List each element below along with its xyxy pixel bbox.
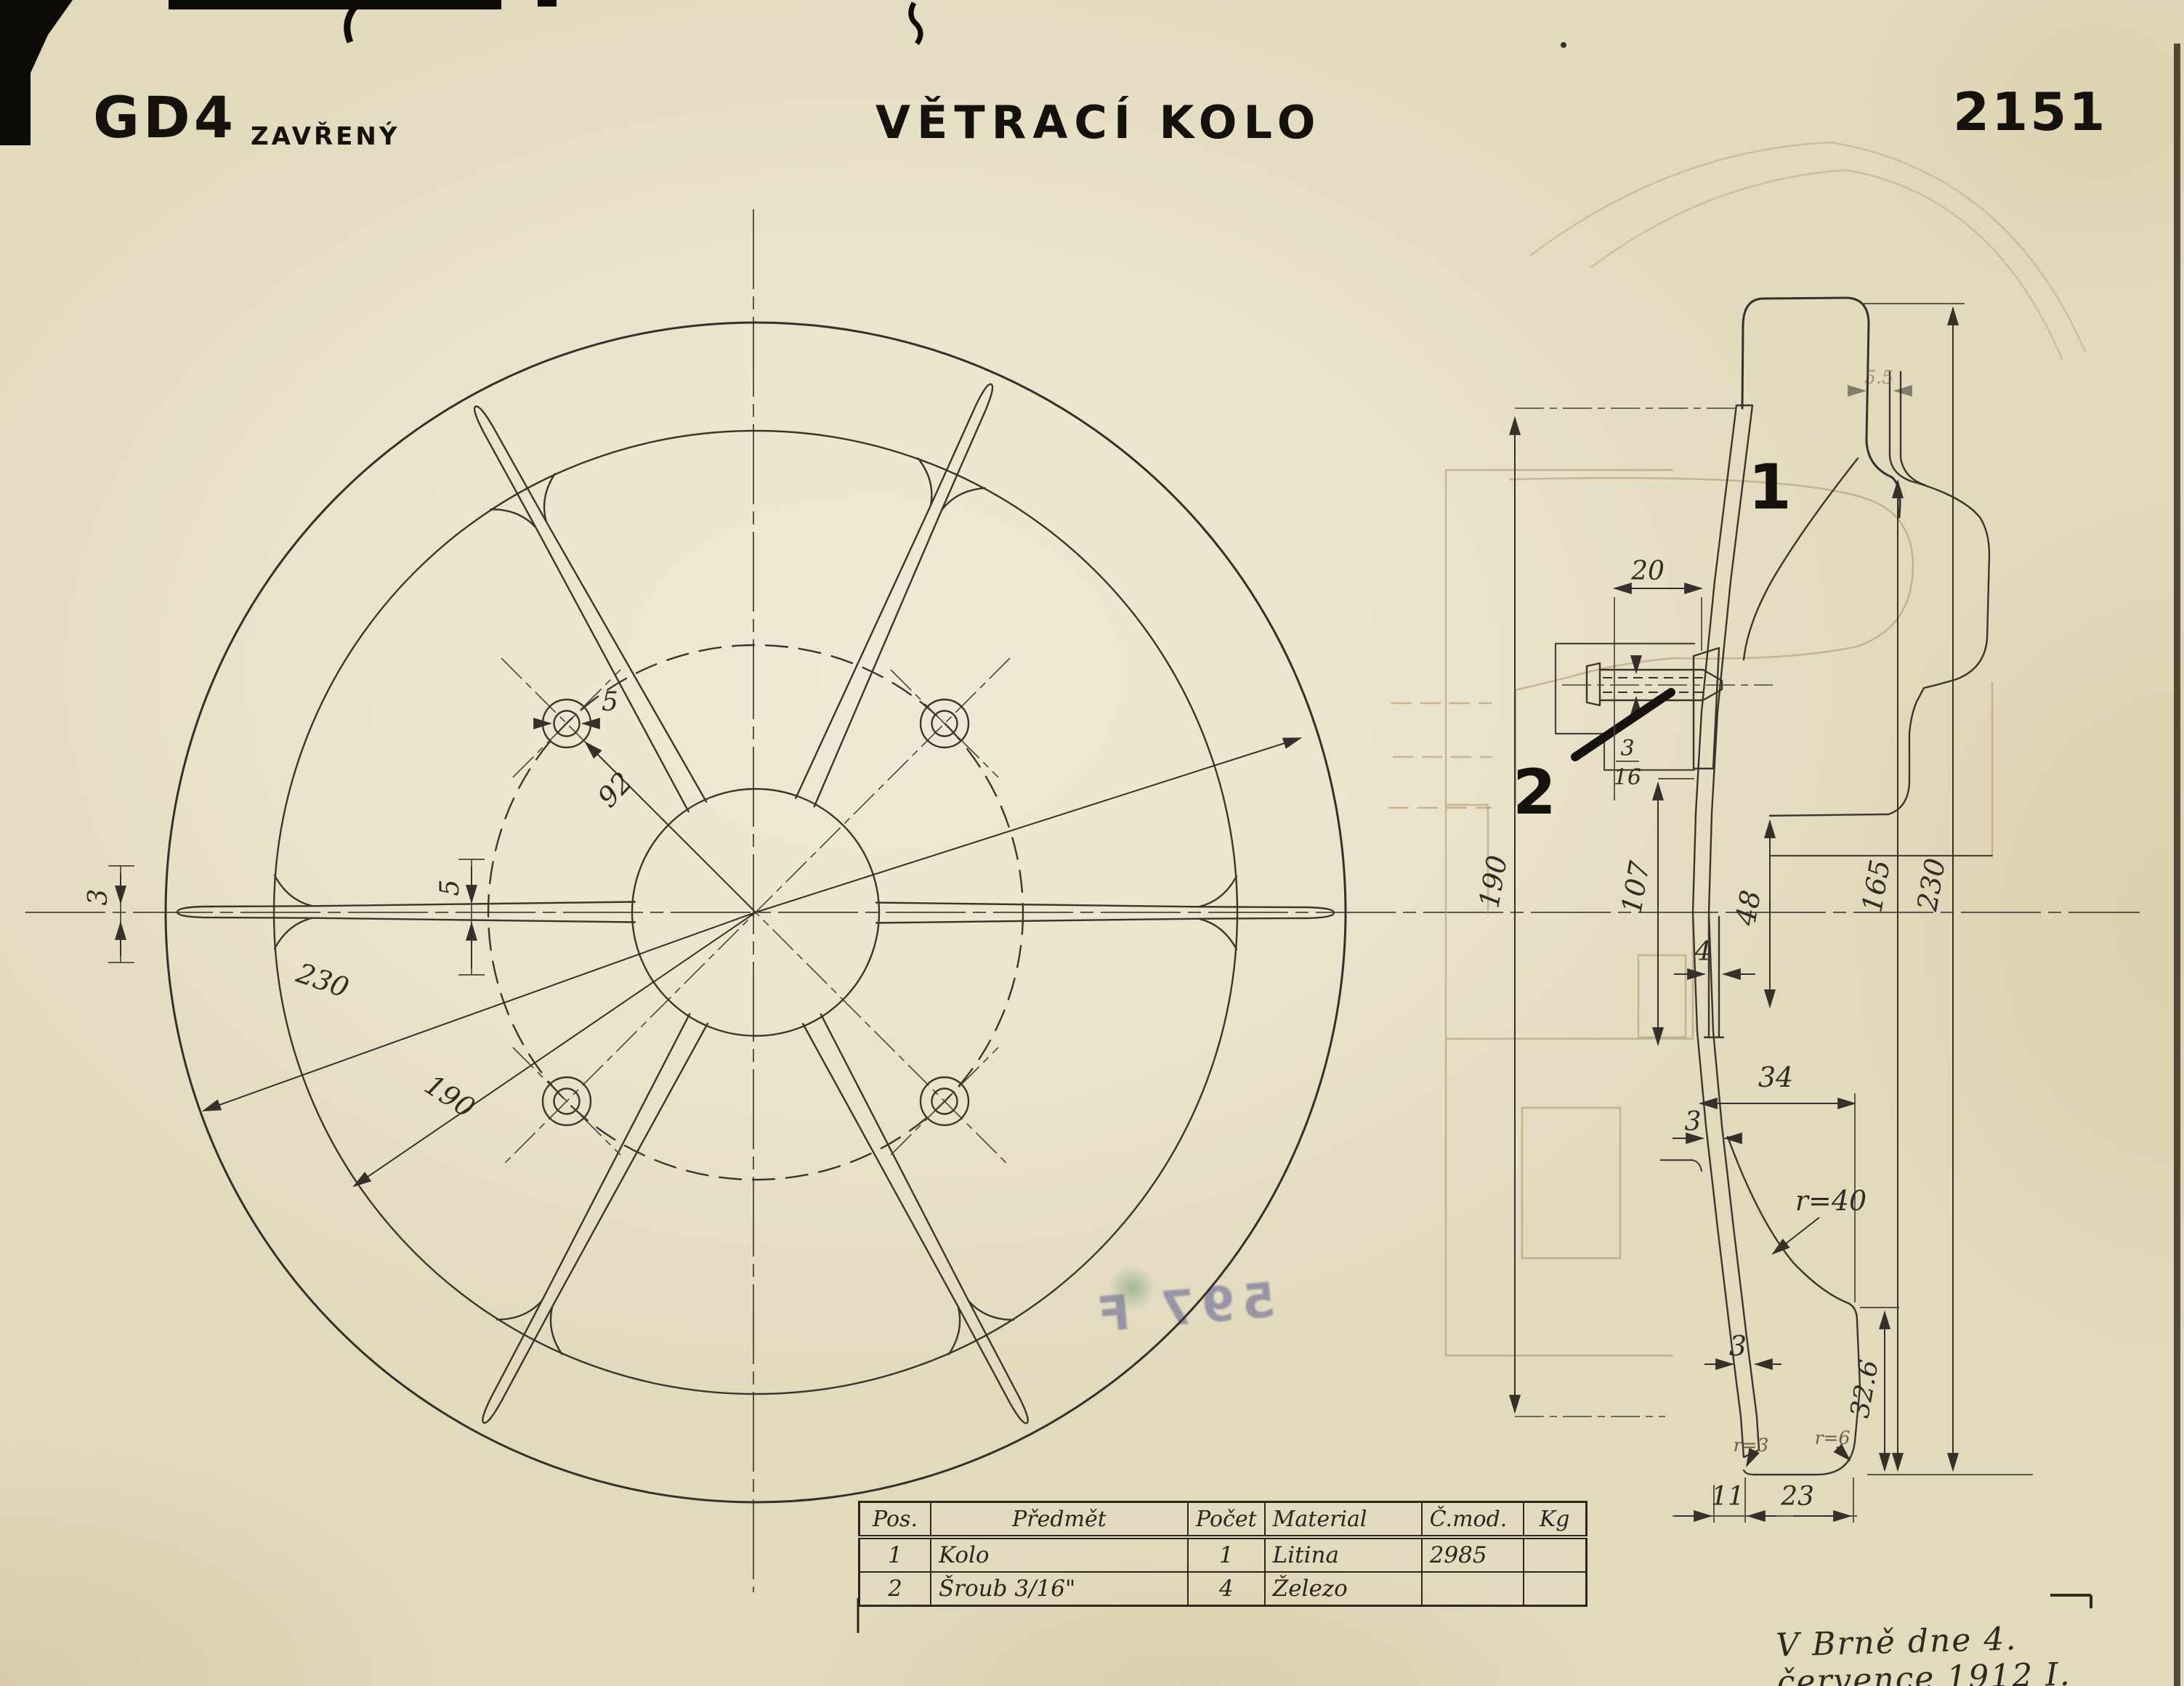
svg-text:5.5: 5.5 [1864, 367, 1893, 388]
dim-r3: r=3 [1734, 1435, 1769, 1466]
front-view: 230 190 92 5 3 5 [25, 209, 2140, 1592]
svg-text:r=3: r=3 [1734, 1435, 1769, 1456]
col-pos: Pos. [860, 1502, 931, 1538]
svg-text:5: 5 [435, 880, 465, 896]
cell: 2985 [1422, 1537, 1524, 1572]
svg-text:3: 3 [1620, 736, 1634, 761]
cell [1422, 1572, 1524, 1606]
dim-d107: 107 [1615, 779, 1694, 1045]
dim-r40: r=40 [1773, 1185, 1866, 1254]
svg-text:165: 165 [1856, 857, 1896, 915]
blade-elevation-line [1661, 1160, 1702, 1171]
svg-text:20: 20 [1630, 556, 1665, 586]
hub-bore-walls [1704, 917, 1723, 1037]
blade-lower-left [451, 1002, 731, 1440]
dim-55: 5.5 [1854, 367, 1906, 391]
date-note: V Brně dne 4. července 1912 I. [1776, 1616, 2184, 1686]
cell: 1 [860, 1537, 931, 1572]
dim-line-190 [354, 912, 756, 1186]
dim-text-230: 230 [292, 957, 353, 1005]
dim-blade-tip-3: 3 [84, 866, 134, 962]
drawing-canvas: 230 190 92 5 3 5 [0, 0, 2184, 1686]
cell [1524, 1537, 1587, 1572]
dim-blade-5: 5 [435, 859, 485, 975]
ink-squiggle [911, 3, 921, 44]
dim-d48: 48 [1729, 821, 1770, 1007]
scan-artifacts [0, 0, 2180, 1686]
svg-text:3: 3 [1729, 1330, 1747, 1362]
dim-34: 34 [1700, 1061, 1855, 1302]
svg-text:r=40: r=40 [1795, 1185, 1866, 1217]
pencil-arc [1591, 170, 2062, 359]
col-predmet: Předmět [931, 1502, 1188, 1538]
svg-text:107: 107 [1615, 858, 1656, 916]
ink-mark [347, 4, 357, 42]
dim-thread: 3 16 [1614, 736, 1641, 790]
svg-text:190: 190 [1473, 853, 1513, 910]
svg-text:230: 230 [1911, 856, 1952, 914]
radius-arrow [756, 738, 1301, 912]
cell: 1 [1188, 1537, 1265, 1572]
dim-text-190: 190 [419, 1069, 481, 1124]
blade-upper-left [443, 389, 729, 824]
svg-text:16: 16 [1614, 765, 1641, 790]
svg-text:3: 3 [84, 889, 113, 906]
svg-text:r=6: r=6 [1815, 1427, 1851, 1448]
svg-text:34: 34 [1758, 1061, 1793, 1093]
svg-text:4: 4 [1694, 937, 1712, 967]
table-row: 1 Kolo 1 Litina 2985 [860, 1537, 1587, 1572]
blade-upper-right [772, 369, 1025, 817]
dim-326: 32.6 [1845, 1308, 1899, 1470]
dim-11-23: 11 23 [1673, 1478, 1857, 1523]
dim-line-230 [203, 912, 756, 1111]
cell: Šroub 3/16" [931, 1572, 1188, 1606]
cell: Kolo [931, 1537, 1188, 1572]
dim-text-92: 92 [591, 766, 639, 813]
section-view: 1 2 3 16 20 190 [1389, 142, 2085, 1523]
cell [1524, 1572, 1587, 1606]
part-label-1: 1 [1748, 451, 1792, 524]
right-edge-shadow [2174, 44, 2180, 1686]
col-pocet: Počet [1188, 1502, 1265, 1538]
top-strip [169, 0, 501, 9]
cell: 2 [860, 1572, 931, 1606]
dim-line-92 [586, 742, 756, 912]
dim-d165: 165 [1856, 481, 1898, 1470]
inlet-neck [1890, 372, 1925, 485]
svg-text:23: 23 [1780, 1482, 1814, 1512]
dim-3-lower: 3 [1704, 1330, 1781, 1364]
cell: 4 [1188, 1572, 1265, 1606]
disc-section-hatched [1693, 405, 1759, 1457]
cell: Železo [1265, 1572, 1422, 1606]
dim-text-hole-5: 5 [602, 687, 618, 717]
svg-text:48: 48 [1729, 888, 1767, 928]
col-cmod: Č.mod. [1422, 1502, 1524, 1538]
part-label-2: 2 [1513, 756, 1556, 829]
cell: Litina [1265, 1537, 1422, 1572]
col-kg: Kg [1524, 1502, 1587, 1538]
corner-mark [2050, 1595, 2091, 1608]
pencil-casing [1389, 142, 2085, 1355]
svg-text:11: 11 [1711, 1482, 1744, 1512]
blueprint-sheet: GD4 ZAVŘENÝ VĚTRACÍ KOLO 2151 597 F [0, 0, 2184, 1686]
svg-text:3: 3 [1685, 1107, 1702, 1137]
fly-speck [1561, 42, 1566, 48]
col-material: Material [1265, 1502, 1422, 1538]
table-header-row: Pos. Předmět Počet Material Č.mod. Kg [860, 1502, 1587, 1538]
table-row: 2 Šroub 3/16" 4 Železo [860, 1572, 1587, 1606]
svg-text:32.6: 32.6 [1845, 1358, 1885, 1420]
blade-lower-right [780, 1002, 1059, 1440]
set-screw [1562, 660, 1773, 710]
dim-r6: r=6 [1815, 1427, 1851, 1460]
parts-table: Pos. Předmět Počet Material Č.mod. Kg 1 … [858, 1501, 1588, 1607]
